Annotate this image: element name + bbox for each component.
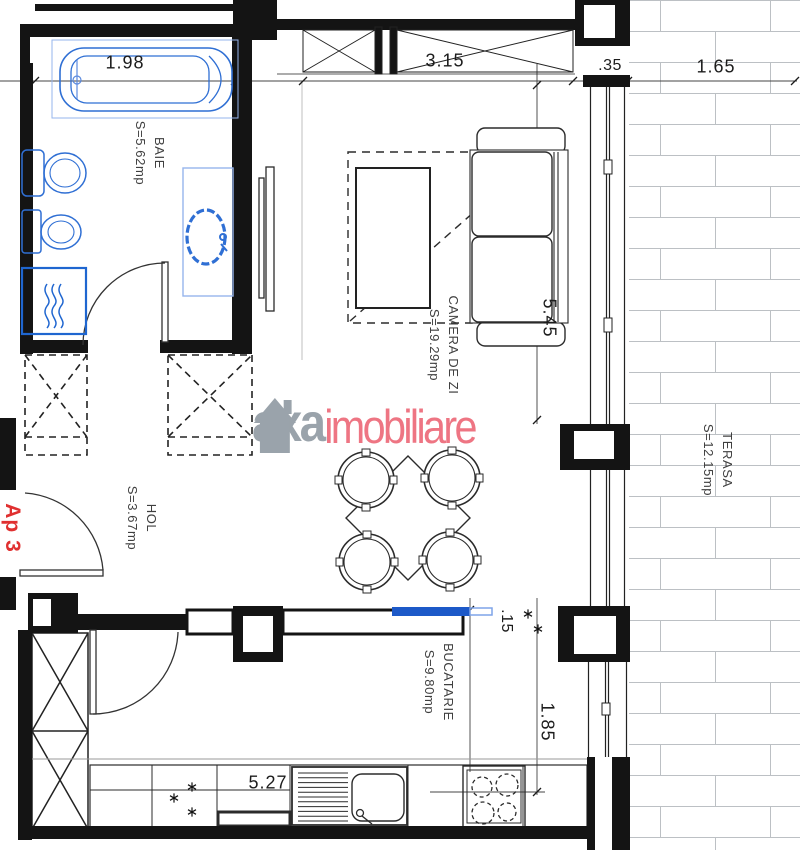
entrance-door (20, 493, 103, 576)
faucet (357, 810, 364, 817)
room-label-camera-de-zi: CAMERA DE ZI S=19.29mp (424, 296, 462, 395)
kitchen-sink (292, 767, 407, 825)
room-name: BUCATARIE (438, 643, 457, 721)
sink-faucet (220, 234, 226, 240)
dim-terrace-width: 1.65 (696, 57, 735, 78)
dim-living-window-width: 3.15 (425, 51, 464, 72)
room-area: S=12.15mp (698, 424, 717, 496)
kitchen-door (90, 630, 178, 714)
room-name: HOL (141, 486, 160, 550)
dim-living-room-length: 5.45 (539, 298, 560, 337)
star-marks (170, 609, 542, 816)
dishwasher (218, 812, 290, 826)
kitchen-window (589, 662, 627, 757)
room-label-hol: HOL S=3.67mp (122, 486, 160, 550)
bathtub (52, 40, 238, 118)
terrace-glazing (591, 87, 625, 606)
room-label-terasa: TERASA S=12.15mp (698, 424, 736, 496)
dim-bathtub-length: 1.98 (105, 53, 144, 74)
dim-kitchen-width: 5.27 (248, 773, 287, 794)
bathroom-door (83, 262, 168, 345)
dim-wall-offset: .15 (497, 609, 515, 633)
tv (259, 167, 274, 311)
wardrobe-right (168, 355, 252, 455)
dim-pillar-width: .35 (598, 57, 622, 75)
apartment-number: Ap 3 (0, 503, 24, 553)
room-name: BAIE (149, 121, 168, 185)
room-area: S=19.29mp (424, 296, 443, 395)
coffee-table (356, 168, 430, 308)
house-logo-icon (252, 396, 298, 454)
room-label-baie: BAIE S=5.62mp (130, 121, 168, 185)
floor-plan: axa imobiliare 1.98 3.15 .35 1.65 5.27 5… (0, 0, 800, 850)
room-label-bucatarie: BUCATARIE S=9.80mp (419, 643, 457, 721)
room-area: S=3.67mp (122, 486, 141, 550)
watermark: axa imobiliare (252, 396, 475, 450)
watermark-brand-suffix: imobiliare (324, 403, 475, 450)
dining-set (335, 447, 483, 593)
kitchen-cabinet (32, 633, 88, 829)
dim-kitchen-window-height: 1.85 (537, 702, 558, 741)
kitchen-counter (32, 759, 587, 827)
room-area: S=9.80mp (419, 643, 438, 721)
room-name: TERASA (717, 424, 736, 496)
stove (463, 766, 525, 827)
room-area: S=5.62mp (130, 121, 149, 185)
wardrobe-left (25, 355, 87, 455)
burners (472, 774, 518, 824)
vanity-sink (183, 168, 233, 296)
accent-bar (392, 607, 492, 616)
room-name: CAMERA DE ZI (443, 296, 462, 395)
